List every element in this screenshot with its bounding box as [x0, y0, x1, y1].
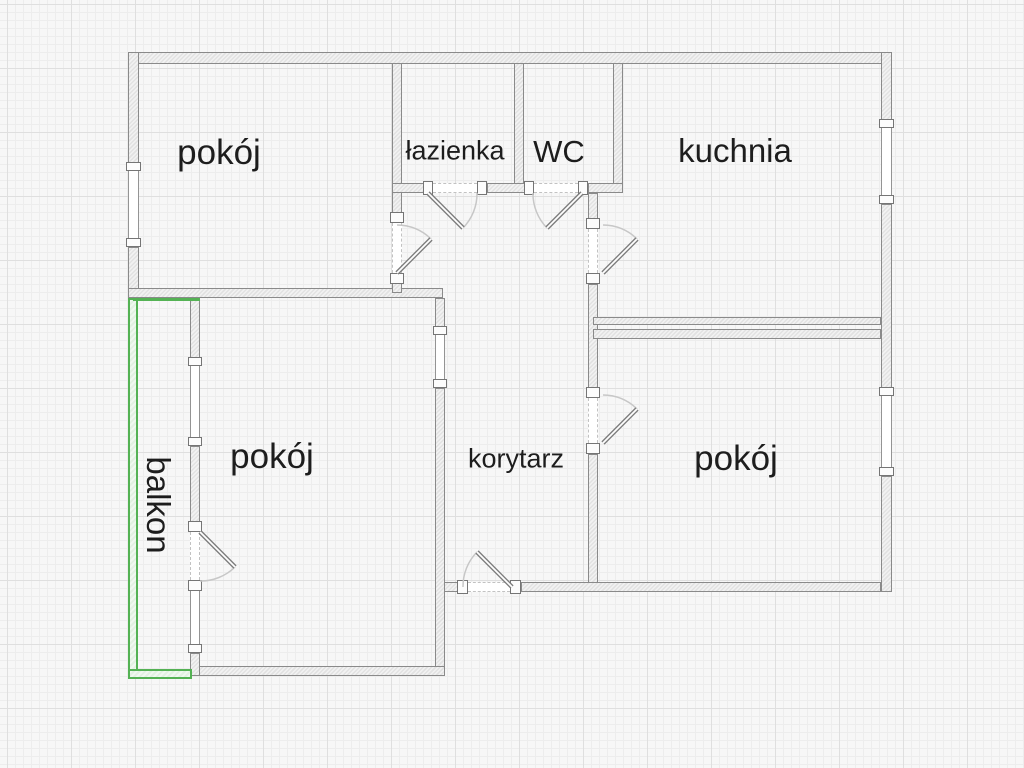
door-room-br [603, 395, 637, 443]
room-label-pokoj-top-left: pokój [177, 133, 261, 173]
door-room-tl [397, 225, 431, 273]
room-label-pokoj-bottom-right: pokój [694, 439, 778, 479]
room-label-wc: WC [533, 134, 585, 170]
door-kitchen [603, 225, 637, 273]
door-bathroom [428, 193, 477, 228]
room-label-kuchnia: kuchnia [678, 132, 792, 170]
door-balcony [200, 532, 235, 581]
room-label-lazienka: łazienka [405, 136, 504, 167]
room-label-korytarz: korytarz [468, 444, 564, 475]
door-entrance [463, 552, 512, 587]
door-wc [533, 193, 582, 228]
room-label-balkon: balkon [139, 456, 177, 553]
floor-plan: pokój łazienka WC kuchnia pokój korytarz… [0, 0, 1024, 768]
room-label-pokoj-bottom-left: pokój [230, 437, 314, 477]
door-swings [0, 0, 1024, 768]
